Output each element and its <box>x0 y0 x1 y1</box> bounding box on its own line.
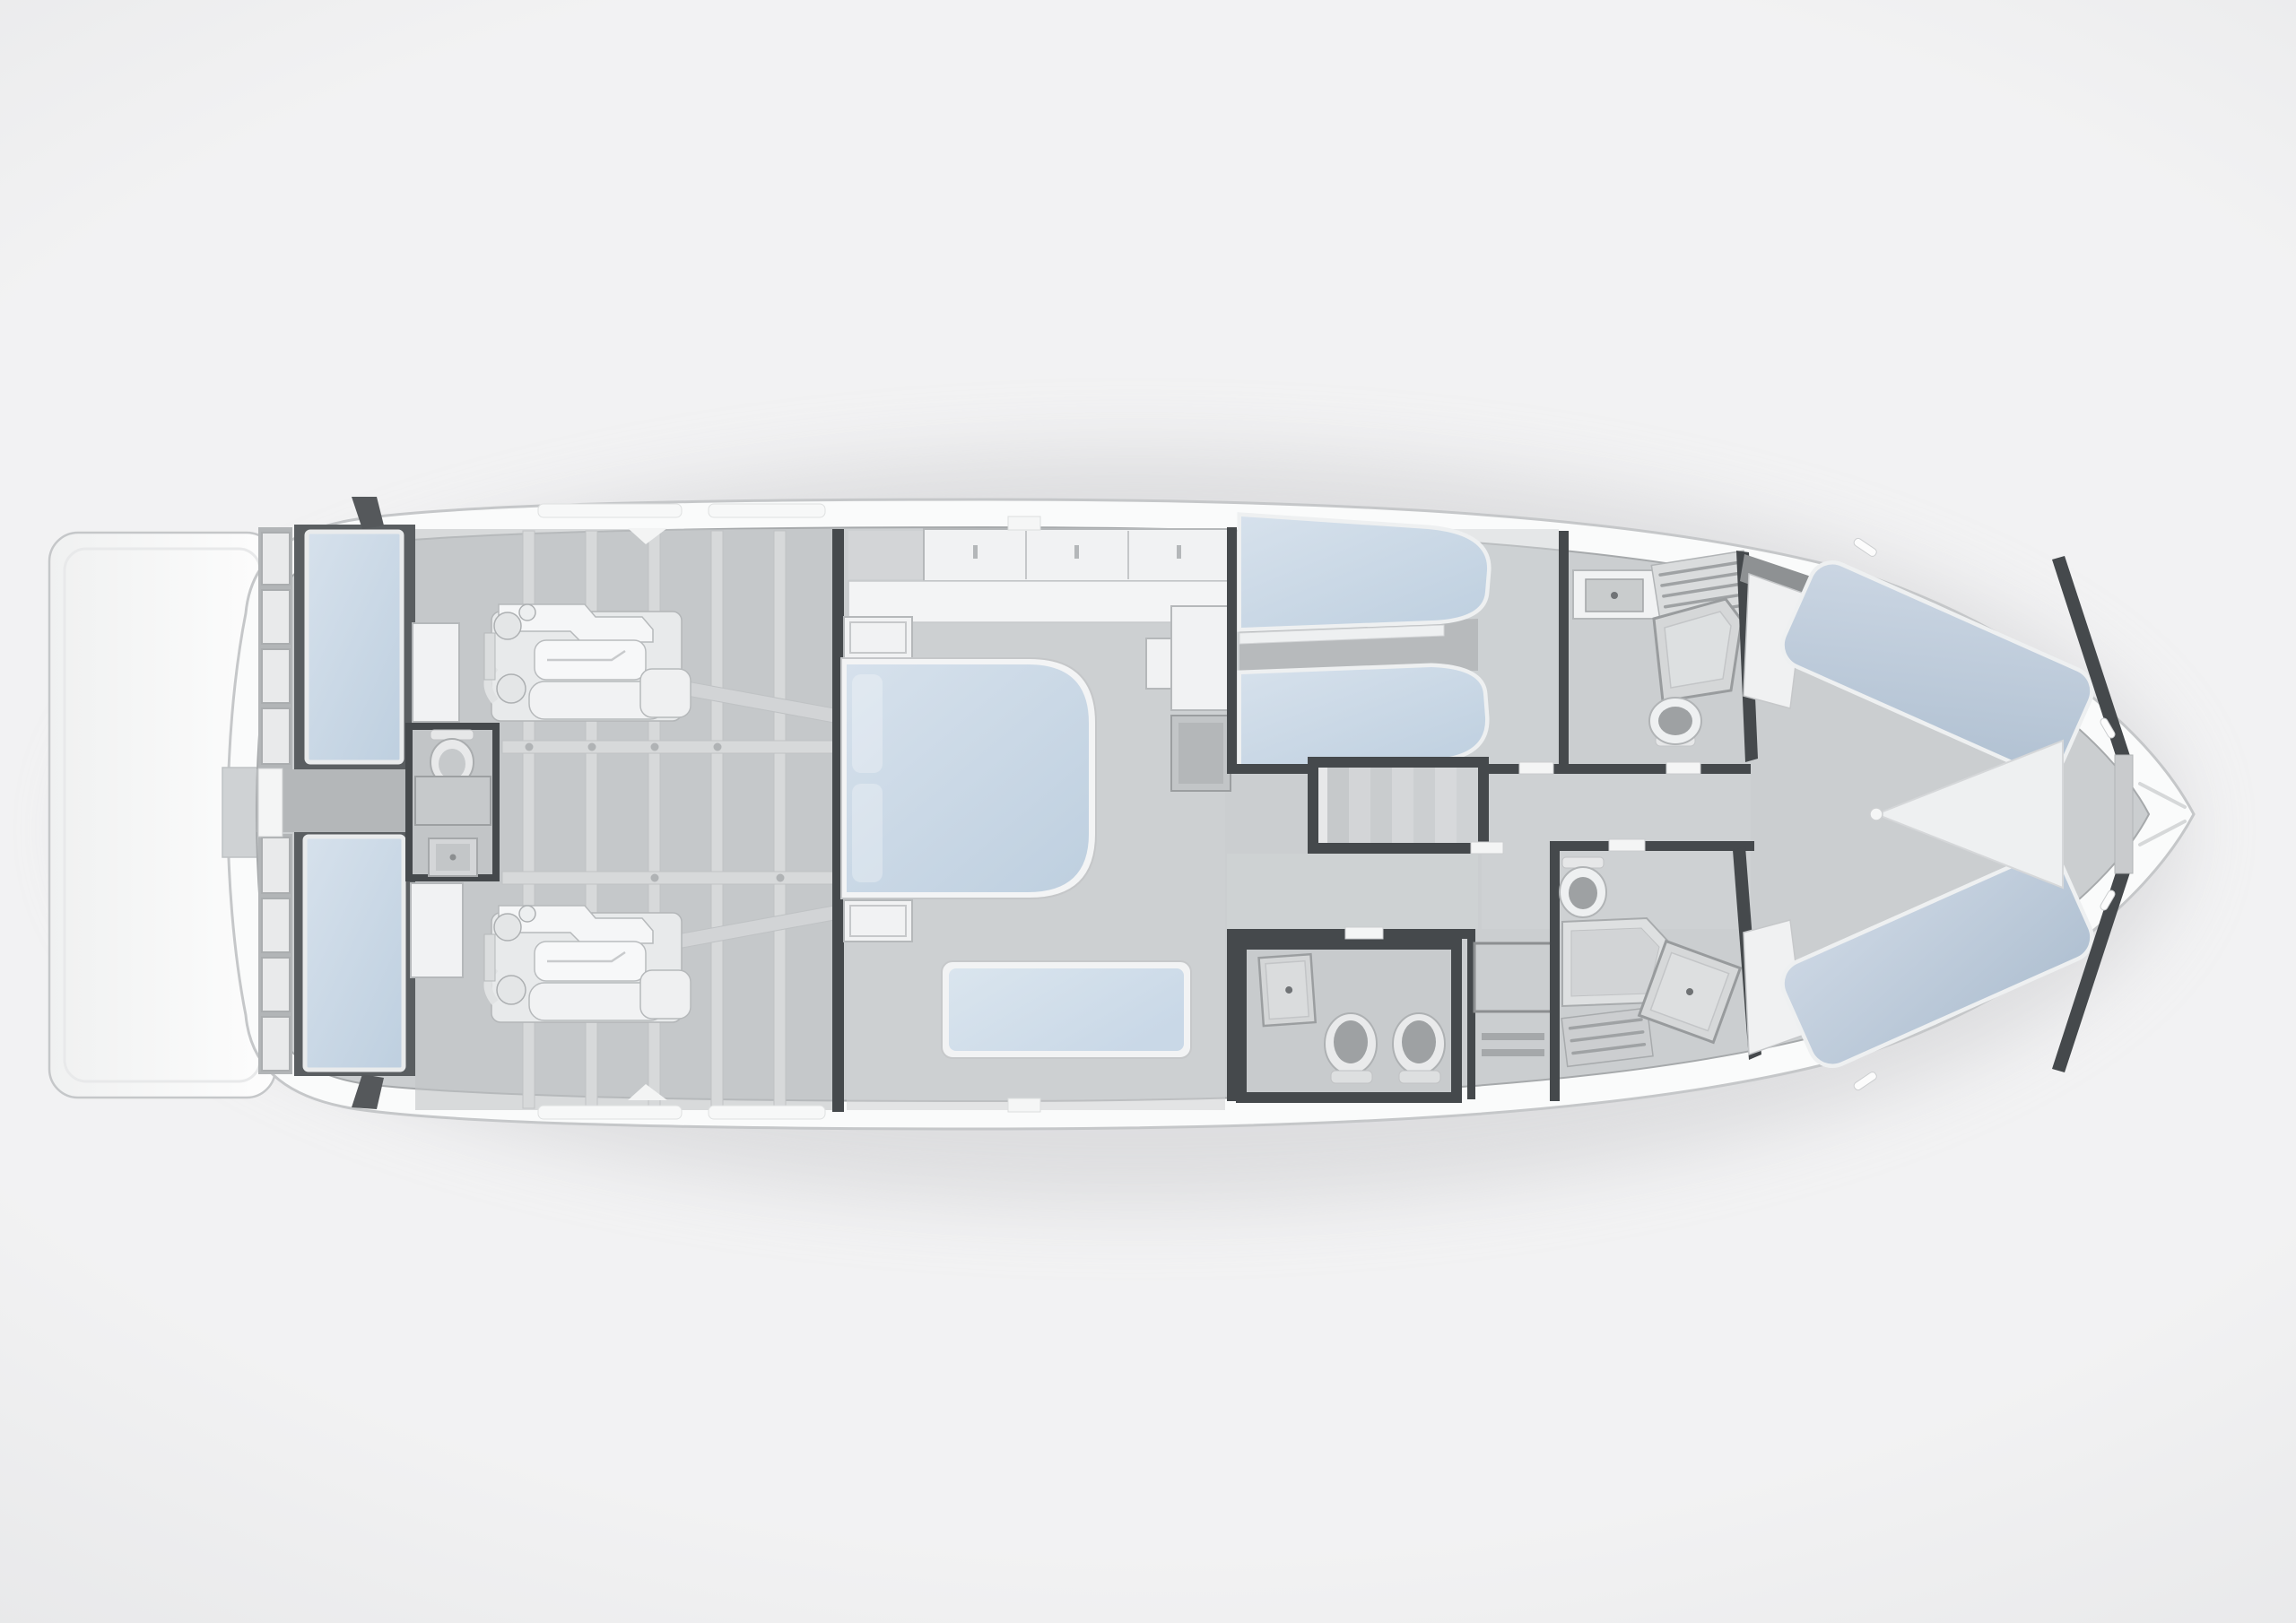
faucet-icon <box>1611 592 1618 599</box>
transom-door <box>258 768 283 837</box>
bidet-base <box>1331 1071 1372 1083</box>
bolt-icon <box>588 743 596 751</box>
bidet-bowl <box>1334 1020 1368 1063</box>
side-table <box>1146 638 1171 689</box>
deck-hatch <box>709 1106 825 1119</box>
bolt-icon <box>651 874 659 882</box>
vanity-top <box>1571 928 1659 996</box>
door-threshold-twin-cabin <box>1519 762 1553 774</box>
engine-port <box>484 604 691 721</box>
locker-cell <box>262 1017 290 1071</box>
bolt-icon <box>777 874 785 882</box>
single-bed-outer <box>1241 516 1487 628</box>
toilet-base <box>1399 1071 1440 1083</box>
cabinet-handle-icon <box>973 545 978 559</box>
chaise-sofa <box>949 968 1184 1051</box>
twin-cabin <box>1239 516 1487 768</box>
wardrobe-column <box>1171 606 1231 710</box>
toilet-bowl <box>439 749 465 779</box>
forepeak-post <box>2115 755 2133 873</box>
crew-head <box>405 723 500 881</box>
guest-bathroom <box>1236 939 1462 1103</box>
locker-cell <box>262 649 290 703</box>
cabinet-handle-icon <box>1177 545 1181 559</box>
staircase <box>1308 757 1489 854</box>
faucet-icon <box>450 855 457 861</box>
shelf-strip <box>848 531 924 579</box>
head-counter <box>415 777 491 825</box>
pillow <box>852 674 883 773</box>
toilet-bowl <box>1658 707 1692 735</box>
vent-louver <box>1482 1033 1544 1040</box>
bolt-icon <box>651 743 659 751</box>
stair-tread <box>1349 768 1370 843</box>
locker-cell <box>262 898 290 952</box>
door-threshold-guest-bath <box>1345 927 1383 939</box>
single-bed-inner <box>1241 667 1485 768</box>
locker-cell <box>262 708 290 764</box>
toilet-bowl <box>1402 1020 1436 1063</box>
cabinet-handle-icon <box>1074 545 1079 559</box>
wall-master-twin <box>1227 527 1237 764</box>
locker-cell <box>262 958 290 1011</box>
deck-hatch <box>538 504 682 517</box>
crew-berth-starboard <box>305 837 404 1070</box>
stair-tread <box>1413 768 1435 843</box>
double-bed <box>847 664 1089 892</box>
stair-tread <box>1435 768 1457 843</box>
corridor-floor <box>1227 854 1478 929</box>
wall-master-lower <box>1227 929 1237 1101</box>
crew-cabinet <box>411 883 463 977</box>
locker-cell <box>262 533 290 585</box>
engine-starboard <box>484 906 691 1022</box>
crew-berth-port <box>307 532 402 762</box>
door-threshold-twin-bath <box>1666 762 1700 774</box>
side-deck-tab <box>1008 516 1040 530</box>
stringer-beam <box>502 741 834 753</box>
stair-tread <box>1392 768 1413 843</box>
frame-beam <box>774 531 786 1108</box>
stair-tread <box>1370 768 1392 843</box>
toilet-bowl <box>1569 877 1597 909</box>
door-threshold-stairs <box>1471 842 1503 854</box>
vip-bath-wall-north <box>1550 841 1754 851</box>
frame-beam <box>711 531 723 1108</box>
locker-cell <box>262 590 290 644</box>
bolt-icon <box>526 743 534 751</box>
stair-tread <box>1327 768 1349 843</box>
wedge-knob <box>1870 808 1883 820</box>
stair-tread <box>1457 768 1478 843</box>
scene <box>0 0 2296 1623</box>
shower <box>1259 954 1316 1026</box>
yacht-floor-plan <box>0 0 2296 1623</box>
deck-hatch <box>709 504 825 517</box>
mooring-cleat <box>1853 537 1878 558</box>
locker-cell <box>262 838 290 893</box>
vent-louver <box>1482 1049 1544 1056</box>
deck-hatch <box>538 1106 682 1119</box>
pillow <box>852 784 883 882</box>
door-threshold-vip-bath <box>1609 839 1645 851</box>
bolt-icon <box>714 743 722 751</box>
wall-twin-bathroom <box>1559 531 1569 764</box>
stair-landing <box>1318 768 1327 843</box>
side-deck-tab <box>1008 1098 1040 1112</box>
lobby-floor <box>1482 775 1751 929</box>
storage-chest <box>1474 943 1553 1011</box>
vip-bath-wall-west <box>1550 841 1560 1101</box>
crew-cabinet <box>413 623 459 722</box>
tv-screen <box>1178 723 1223 784</box>
